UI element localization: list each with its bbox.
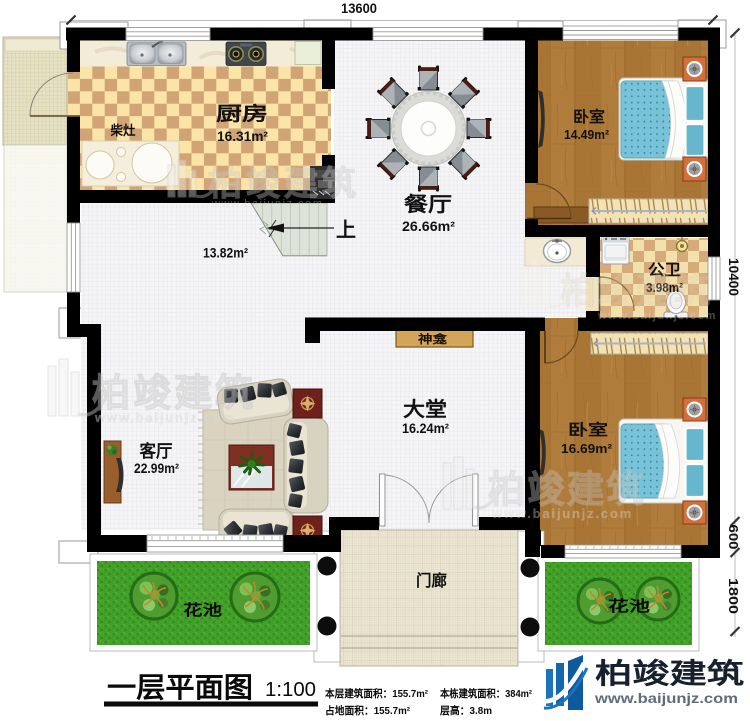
- svg-text:占地面积：155.7m²: 占地面积：155.7m²: [325, 704, 410, 717]
- svg-text:餐厅: 餐厅: [404, 192, 452, 216]
- svg-text:13600: 13600: [341, 1, 377, 16]
- svg-text:卧室: 卧室: [568, 420, 608, 439]
- svg-text:1:100: 1:100: [265, 679, 316, 701]
- svg-text:大堂: 大堂: [403, 398, 447, 421]
- svg-text:本层建筑面积：155.7m²: 本层建筑面积：155.7m²: [325, 687, 428, 700]
- svg-text:www.baijunjz.com: www.baijunjz.com: [491, 506, 633, 521]
- svg-text:www.baijunjz.com: www.baijunjz.com: [594, 690, 738, 706]
- svg-text:www.baijunjz.com: www.baijunjz.com: [94, 410, 236, 425]
- svg-text:1800: 1800: [726, 578, 740, 614]
- svg-text:22.99m²: 22.99m²: [134, 461, 179, 476]
- svg-text:14.49m²: 14.49m²: [564, 127, 610, 142]
- svg-text:16.31m²: 16.31m²: [217, 128, 268, 144]
- svg-text:26.66m²: 26.66m²: [402, 218, 455, 234]
- svg-text:神龛: 神龛: [418, 332, 448, 346]
- svg-text:16.24m²: 16.24m²: [402, 420, 449, 436]
- svg-text:花池: 花池: [608, 597, 650, 615]
- svg-text:www.baijunjz.com: www.baijunjz.com: [597, 310, 717, 322]
- svg-text:柏竣建筑: 柏竣建筑: [92, 373, 256, 415]
- svg-text:客厅: 客厅: [139, 441, 173, 461]
- svg-text:柏竣建筑: 柏竣建筑: [488, 468, 646, 510]
- svg-text:门廊: 门廊: [416, 571, 447, 590]
- svg-text:卧室: 卧室: [573, 107, 605, 126]
- svg-text:16.69m²: 16.69m²: [561, 441, 613, 456]
- svg-text:上: 上: [336, 219, 356, 242]
- svg-text:柏竣建筑: 柏竣建筑: [560, 270, 712, 311]
- svg-text:柏竣建筑: 柏竣建筑: [595, 657, 744, 689]
- svg-text:层高：3.8m: 层高：3.8m: [440, 704, 492, 717]
- svg-text:柴灶: 柴灶: [110, 123, 136, 138]
- svg-text:10400: 10400: [726, 258, 741, 296]
- svg-text:花池: 花池: [183, 601, 222, 619]
- svg-text:一层平面图: 一层平面图: [107, 672, 253, 703]
- svg-text:600: 600: [726, 525, 740, 550]
- svg-text:本栋建筑面积：384m²: 本栋建筑面积：384m²: [440, 687, 532, 700]
- svg-text:13.82m²: 13.82m²: [203, 245, 248, 261]
- svg-text:厨房: 厨房: [216, 102, 268, 125]
- svg-text:www.baijunjz.com: www.baijunjz.com: [211, 198, 323, 210]
